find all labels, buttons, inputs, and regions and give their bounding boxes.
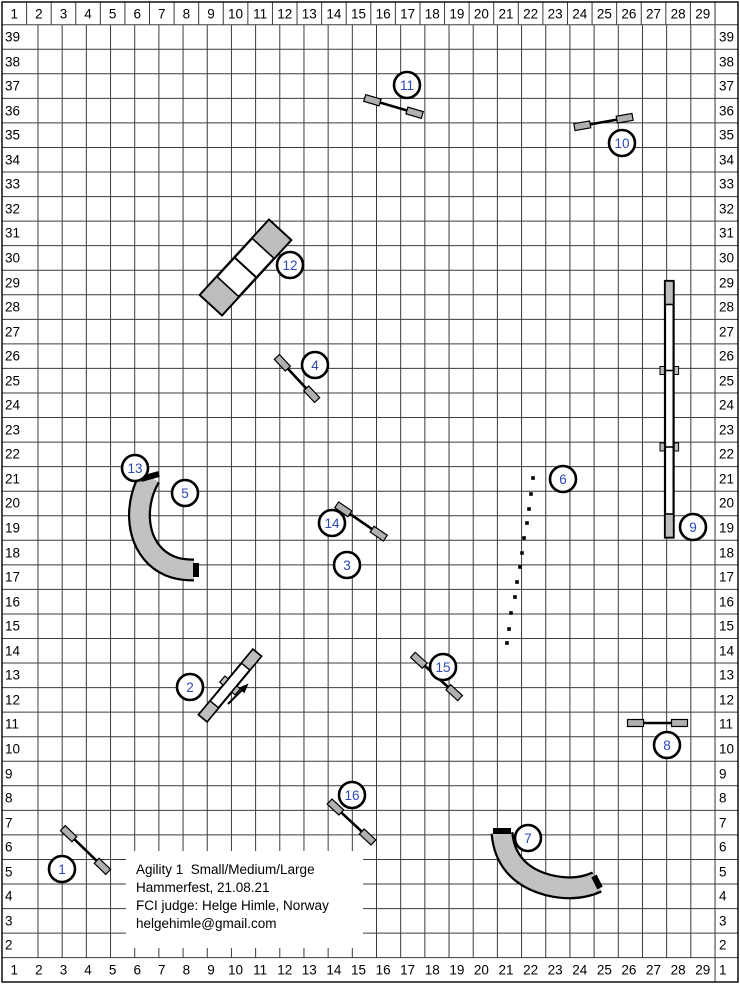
svg-text:9: 9 xyxy=(689,520,697,535)
row-label-left-15: 15 xyxy=(5,619,20,633)
obstacle-number-11: 11 xyxy=(394,72,420,98)
col-label-bottom-22: 22 xyxy=(523,963,538,977)
col-label-top-1: 1 xyxy=(11,7,19,21)
obstacle-number-5: 5 xyxy=(172,480,198,506)
row-label-left-22: 22 xyxy=(5,448,20,462)
svg-text:5: 5 xyxy=(181,486,189,501)
row-label-right-2: 2 xyxy=(719,939,727,953)
row-label-right-6: 6 xyxy=(719,840,727,854)
svg-text:8: 8 xyxy=(663,738,671,753)
row-label-left-18: 18 xyxy=(5,546,20,560)
row-label-left-5: 5 xyxy=(5,865,13,879)
row-label-left-19: 19 xyxy=(5,521,20,535)
obstacle-number-15: 15 xyxy=(430,654,456,680)
col-label-bottom-10: 10 xyxy=(228,963,243,977)
col-label-top-2: 2 xyxy=(35,7,43,21)
row-label-right-33: 33 xyxy=(719,178,734,192)
course-judge: FCI judge: Helge Himle, Norway xyxy=(136,897,363,915)
row-label-right-32: 32 xyxy=(719,202,734,216)
obstacle-number-10: 10 xyxy=(609,130,635,156)
row-label-left-34: 34 xyxy=(5,153,20,167)
row-label-right-30: 30 xyxy=(719,251,734,265)
row-label-right-5: 5 xyxy=(719,865,727,879)
row-label-left-38: 38 xyxy=(5,55,20,69)
row-label-right-39: 39 xyxy=(719,30,734,44)
course-place-date: Hammerfest, 21.08.21 xyxy=(136,879,363,897)
col-label-top-27: 27 xyxy=(646,7,661,21)
col-label-top-9: 9 xyxy=(207,7,215,21)
row-label-left-35: 35 xyxy=(5,128,20,142)
col-label-top-15: 15 xyxy=(351,7,366,21)
jump-8 xyxy=(628,720,688,727)
row-label-left-14: 14 xyxy=(5,644,20,658)
col-label-top-23: 23 xyxy=(548,7,563,21)
col-label-bottom-6: 6 xyxy=(133,963,141,977)
row-label-left-23: 23 xyxy=(5,423,20,437)
col-label-top-20: 20 xyxy=(474,7,489,21)
col-label-bottom-20: 20 xyxy=(474,963,489,977)
weave-poles-6 xyxy=(505,476,535,645)
row-label-right-21: 21 xyxy=(719,472,734,486)
col-label-bottom-25: 25 xyxy=(597,963,612,977)
svg-text:13: 13 xyxy=(127,461,142,476)
row-label-left-37: 37 xyxy=(5,79,20,93)
course-info-box: Agility 1 Small/Medium/Large Hammerfest,… xyxy=(126,851,363,948)
obstacle-number-8: 8 xyxy=(654,732,680,758)
row-label-right-28: 28 xyxy=(719,300,734,314)
row-label-left-4: 4 xyxy=(5,890,13,904)
row-label-left-24: 24 xyxy=(5,399,20,413)
row-label-right-34: 34 xyxy=(719,153,734,167)
row-label-right-16: 16 xyxy=(719,595,734,609)
row-label-right-36: 36 xyxy=(719,104,734,118)
row-label-left-21: 21 xyxy=(5,472,20,486)
col-label-bottom-3: 3 xyxy=(60,963,68,977)
col-label-bottom-28: 28 xyxy=(671,963,686,977)
col-label-top-24: 24 xyxy=(572,7,587,21)
col-label-top-26: 26 xyxy=(621,7,636,21)
row-label-right-10: 10 xyxy=(719,742,734,756)
col-label-bottom-4: 4 xyxy=(84,963,92,977)
row-label-left-13: 13 xyxy=(5,669,20,683)
col-label-bottom-15: 15 xyxy=(351,963,366,977)
row-label-left-32: 32 xyxy=(5,202,20,216)
col-label-top-14: 14 xyxy=(326,7,341,21)
col-label-top-22: 22 xyxy=(523,7,538,21)
row-label-left-11: 11 xyxy=(5,718,19,732)
row-label-right-35: 35 xyxy=(719,128,734,142)
row-label-left-30: 30 xyxy=(5,251,20,265)
row-label-left-31: 31 xyxy=(5,227,20,241)
row-label-left-16: 16 xyxy=(5,595,20,609)
col-label-top-6: 6 xyxy=(133,7,141,21)
row-label-right-3: 3 xyxy=(719,914,727,928)
row-label-right-22: 22 xyxy=(719,448,734,462)
obstacle-number-2: 2 xyxy=(177,674,203,700)
col-label-bottom-9: 9 xyxy=(207,963,215,977)
row-label-left-29: 29 xyxy=(5,276,20,290)
col-label-bottom-24: 24 xyxy=(572,963,587,977)
col-label-bottom-18: 18 xyxy=(425,963,440,977)
obstacle-number-7: 7 xyxy=(515,825,541,851)
svg-text:10: 10 xyxy=(614,136,629,151)
obstacle-number-13: 13 xyxy=(122,455,148,481)
course-title: Agility 1 Small/Medium/Large xyxy=(136,861,363,879)
row-label-right-7: 7 xyxy=(719,816,727,830)
row-label-left-2: 2 xyxy=(5,939,13,953)
svg-text:4: 4 xyxy=(311,358,319,373)
col-label-top-28: 28 xyxy=(671,7,686,21)
row-label-left-6: 6 xyxy=(5,840,13,854)
obstacle-number-12: 12 xyxy=(277,252,303,278)
course-email: helgehimle@gmail.com xyxy=(136,915,363,933)
agility-course-map: 12345678910111213141516 1122334455667788… xyxy=(0,0,740,986)
row-label-left-10: 10 xyxy=(5,742,20,756)
row-label-right-15: 15 xyxy=(719,619,734,633)
obstacle-number-3: 3 xyxy=(334,552,360,578)
obstacle-number-9: 9 xyxy=(680,514,706,540)
col-label-bottom-13: 13 xyxy=(302,963,317,977)
jump-10 xyxy=(574,113,633,130)
row-label-right-12: 12 xyxy=(719,693,734,707)
col-label-bottom-27: 27 xyxy=(646,963,661,977)
row-label-left-39: 39 xyxy=(5,30,20,44)
row-label-left-27: 27 xyxy=(5,325,20,339)
row-label-right-24: 24 xyxy=(719,399,734,413)
row-label-right-29: 29 xyxy=(719,276,734,290)
col-label-top-13: 13 xyxy=(302,7,317,21)
row-label-right-11: 11 xyxy=(719,718,733,732)
row-label-right-38: 38 xyxy=(719,55,734,69)
row-label-right-4: 4 xyxy=(719,890,727,904)
col-label-bottom-29: 29 xyxy=(695,963,710,977)
col-label-bottom-11: 11 xyxy=(253,963,267,977)
course-canvas: 12345678910111213141516 xyxy=(0,0,740,986)
col-label-top-21: 21 xyxy=(499,7,514,21)
row-label-right-8: 8 xyxy=(719,791,727,805)
col-label-top-4: 4 xyxy=(84,7,92,21)
col-label-bottom-2: 2 xyxy=(35,963,43,977)
col-label-bottom-8: 8 xyxy=(183,963,191,977)
col-label-bottom-12: 12 xyxy=(277,963,292,977)
row-label-right-37: 37 xyxy=(719,79,734,93)
col-label-bottom-26: 26 xyxy=(621,963,636,977)
row-label-right-27: 27 xyxy=(719,325,734,339)
row-label-left-17: 17 xyxy=(5,570,20,584)
col-label-top-16: 16 xyxy=(376,7,391,21)
row-label-right-17: 17 xyxy=(719,570,734,584)
row-label-right-13: 13 xyxy=(719,669,734,683)
row-label-right-19: 19 xyxy=(719,521,734,535)
col-label-bottom-16: 16 xyxy=(376,963,391,977)
row-label-right-26: 26 xyxy=(719,349,734,363)
obstacle-number-14: 14 xyxy=(319,510,345,536)
obstacle-number-1: 1 xyxy=(49,856,75,882)
svg-text:2: 2 xyxy=(186,680,194,695)
row-label-left-28: 28 xyxy=(5,300,20,314)
row-label-right-23: 23 xyxy=(719,423,734,437)
col-label-top-19: 19 xyxy=(449,7,464,21)
svg-text:16: 16 xyxy=(344,788,359,803)
svg-text:15: 15 xyxy=(435,660,450,675)
row-label-left-25: 25 xyxy=(5,374,20,388)
obstacle-number-4: 4 xyxy=(302,352,328,378)
row-label-left-33: 33 xyxy=(5,178,20,192)
col-label-bottom-19: 19 xyxy=(449,963,464,977)
svg-text:3: 3 xyxy=(343,558,351,573)
col-label-top-17: 17 xyxy=(400,7,415,21)
col-label-bottom-5: 5 xyxy=(109,963,117,977)
svg-text:12: 12 xyxy=(282,258,297,273)
row-label-right-14: 14 xyxy=(719,644,734,658)
row-label-right-20: 20 xyxy=(719,497,734,511)
col-label-top-12: 12 xyxy=(277,7,292,21)
wall-2 xyxy=(195,646,265,724)
svg-text:14: 14 xyxy=(324,516,340,531)
col-label-top-11: 11 xyxy=(253,7,267,21)
row-label-left-9: 9 xyxy=(5,767,13,781)
obstacle-number-16: 16 xyxy=(339,782,365,808)
row-label-right-18: 18 xyxy=(719,546,734,560)
col-label-top-29: 29 xyxy=(695,7,710,21)
svg-text:11: 11 xyxy=(400,78,414,93)
row-label-left-8: 8 xyxy=(5,791,13,805)
obstacle-number-6: 6 xyxy=(550,466,576,492)
col-label-top-10: 10 xyxy=(228,7,243,21)
col-label-bottom-7: 7 xyxy=(158,963,166,977)
svg-text:1: 1 xyxy=(58,862,66,877)
row-label-left-36: 36 xyxy=(5,104,20,118)
col-label-bottom-1: 1 xyxy=(11,963,19,977)
col-label-bottom-17: 17 xyxy=(400,963,415,977)
col-label-bottom-21: 21 xyxy=(499,963,514,977)
svg-text:6: 6 xyxy=(559,472,567,487)
row-label-left-20: 20 xyxy=(5,497,20,511)
col-label-top-25: 25 xyxy=(597,7,612,21)
row-label-right-25: 25 xyxy=(719,374,734,388)
col-label-top-3: 3 xyxy=(60,7,68,21)
row-label-left-3: 3 xyxy=(5,914,13,928)
col-label-top-18: 18 xyxy=(425,7,440,21)
row-label-left-12: 12 xyxy=(5,693,20,707)
col-label-top-8: 8 xyxy=(183,7,191,21)
row-label-right-9: 9 xyxy=(719,767,727,781)
col-label-top-7: 7 xyxy=(158,7,166,21)
col-label-bottom-14: 14 xyxy=(326,963,341,977)
col-label-top-5: 5 xyxy=(109,7,117,21)
row-label-right-1: 1 xyxy=(719,963,727,977)
svg-text:7: 7 xyxy=(524,831,532,846)
row-label-left-7: 7 xyxy=(5,816,13,830)
row-label-left-26: 26 xyxy=(5,349,20,363)
row-label-right-31: 31 xyxy=(719,227,734,241)
col-label-bottom-23: 23 xyxy=(548,963,563,977)
